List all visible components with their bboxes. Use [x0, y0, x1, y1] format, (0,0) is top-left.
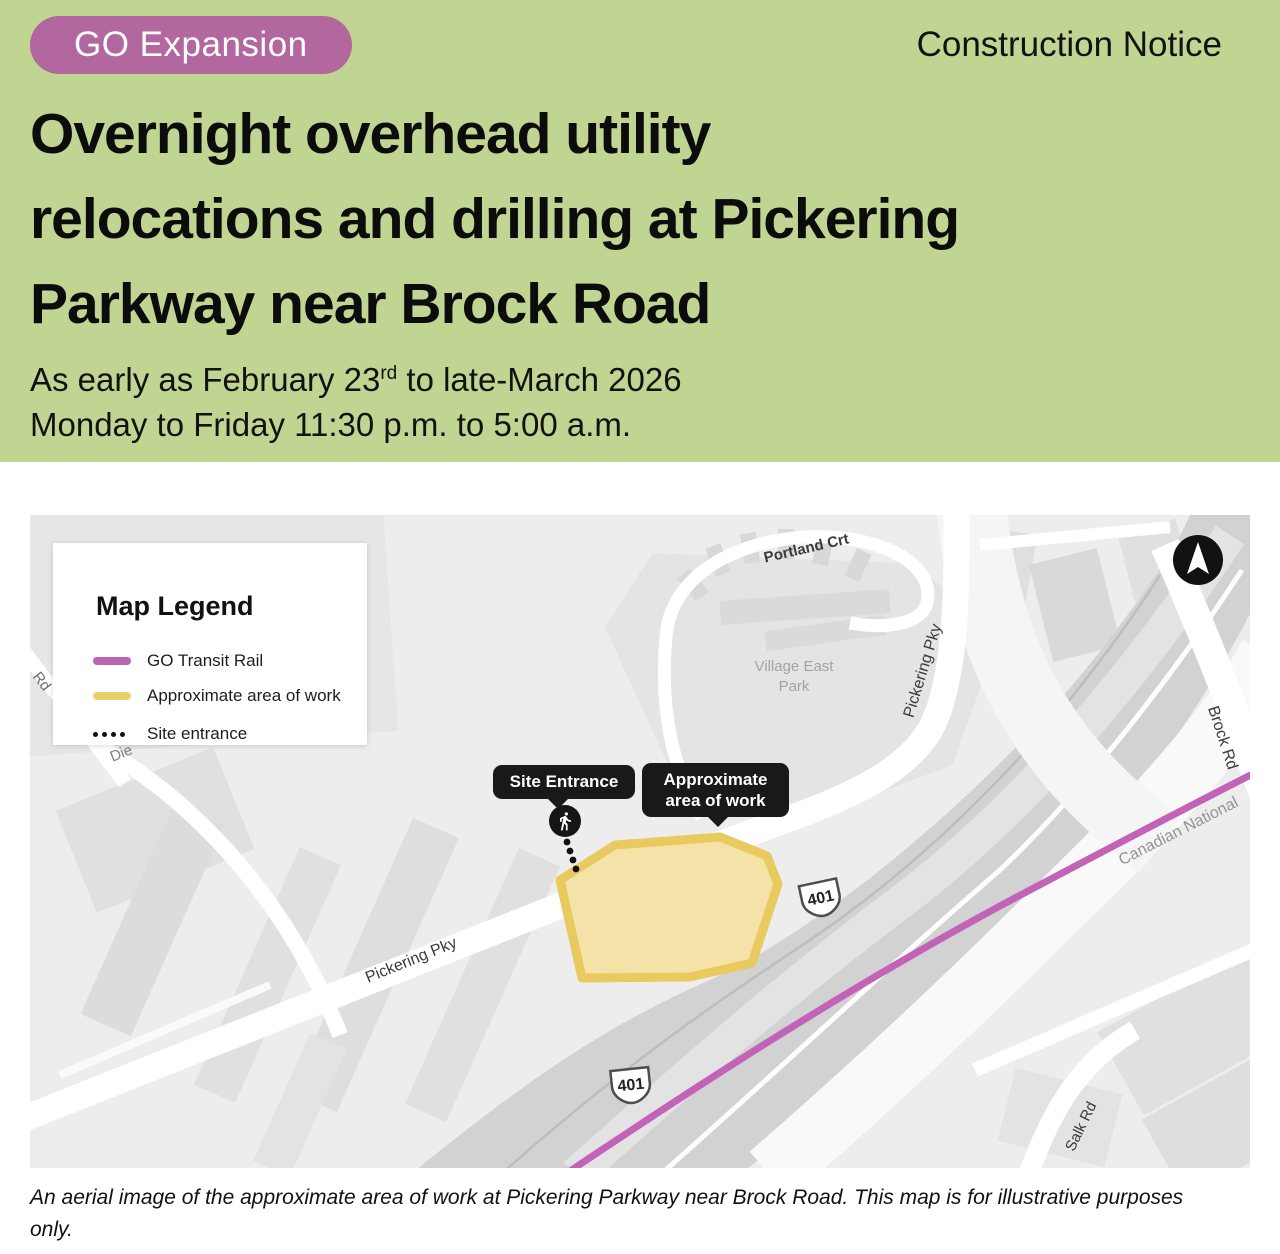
- legend-item-label: GO Transit Rail: [147, 651, 263, 671]
- title-line-1: Overnight overhead utility: [30, 102, 710, 166]
- date-ordinal: rd: [380, 363, 397, 384]
- work-area-tooltip: Approximate area of work: [642, 763, 789, 817]
- legend-item-rail: GO Transit Rail: [93, 651, 263, 671]
- site-entrance-tooltip: Site Entrance: [493, 765, 635, 799]
- notice-type-label: Construction Notice: [917, 25, 1222, 65]
- highway-401-shield: 401: [607, 1064, 655, 1108]
- site-entrance-dot: [567, 848, 574, 855]
- map-legend-title: Map Legend: [96, 591, 254, 622]
- title-line-2: relocations and drilling at Pickering: [30, 187, 959, 251]
- work-area-swatch: [93, 692, 131, 700]
- north-arrow-icon: [1172, 534, 1224, 586]
- notice-header: GO Expansion Construction Notice Overnig…: [0, 0, 1280, 462]
- go-expansion-badge: GO Expansion: [30, 16, 352, 74]
- map-caption: An aerial image of the approximate area …: [30, 1182, 1190, 1245]
- place-label-village-east-park: Village East Park: [742, 657, 846, 698]
- title-line-3: Parkway near Brock Road: [30, 272, 710, 336]
- road: [100, 747, 340, 1035]
- legend-item-work-area: Approximate area of work: [93, 686, 341, 706]
- construction-area-map: Portland Crt Village East Park Pickering…: [30, 515, 1250, 1168]
- rail-line-swatch: [93, 657, 131, 665]
- work-area-polygon: [560, 837, 778, 978]
- work-schedule: Monday to Friday 11:30 p.m. to 5:00 a.m.: [30, 402, 1222, 448]
- site-entrance-dot: [564, 839, 571, 846]
- date-suffix: to late-March 2026: [397, 361, 681, 398]
- highway-shield-number: 401: [617, 1076, 645, 1096]
- map-legend: Map Legend GO Transit Rail Approximate a…: [53, 543, 367, 745]
- legend-item-site-entrance: Site entrance: [93, 724, 247, 744]
- date-prefix: As early as February 23: [30, 361, 380, 398]
- site-entrance-dot: [570, 857, 577, 864]
- legend-item-label: Site entrance: [147, 724, 247, 744]
- site-entrance-dot: [573, 866, 580, 873]
- legend-item-label: Approximate area of work: [147, 686, 341, 706]
- page-title: Overnight overhead utility relocations a…: [30, 92, 1222, 347]
- date-range: As early as February 23rd to late-March …: [30, 357, 1222, 403]
- dotted-trail-swatch: [93, 732, 131, 737]
- walking-person-icon: [549, 805, 581, 837]
